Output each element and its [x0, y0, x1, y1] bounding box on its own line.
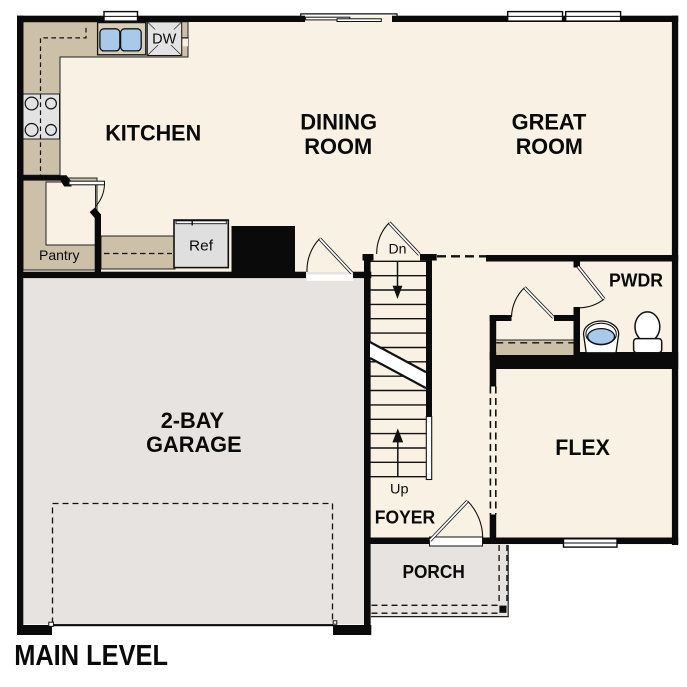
svg-text:ROOM: ROOM — [304, 134, 372, 159]
svg-text:Pantry: Pantry — [39, 247, 79, 263]
svg-text:GREAT: GREAT — [512, 110, 587, 135]
svg-text:DINING: DINING — [300, 110, 377, 135]
svg-text:GARAGE: GARAGE — [146, 432, 242, 457]
svg-text:DW: DW — [152, 31, 176, 47]
svg-text:2-BAY: 2-BAY — [161, 408, 225, 433]
svg-text:Up: Up — [390, 481, 409, 497]
svg-text:ROOM: ROOM — [516, 134, 583, 159]
svg-text:KITCHEN: KITCHEN — [105, 121, 201, 146]
svg-text:MAIN LEVEL: MAIN LEVEL — [14, 640, 168, 672]
svg-text:PORCH: PORCH — [403, 562, 465, 582]
svg-text:Ref: Ref — [189, 238, 214, 255]
svg-text:FLEX: FLEX — [555, 435, 610, 460]
svg-text:Dn: Dn — [389, 242, 407, 257]
svg-text:FOYER: FOYER — [375, 508, 435, 528]
svg-text:PWDR: PWDR — [609, 270, 663, 290]
